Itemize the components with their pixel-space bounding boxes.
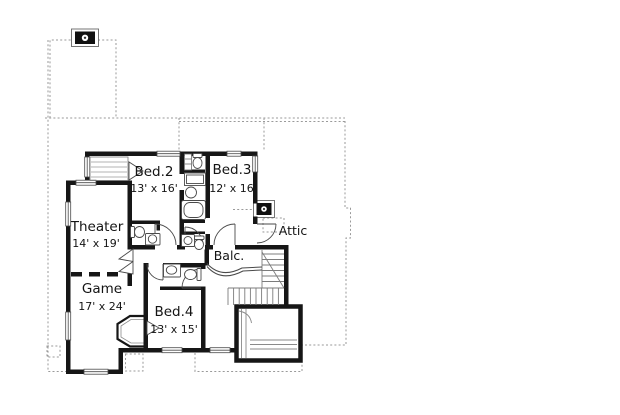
label-balcony: Balc. <box>214 248 245 263</box>
toilet-icon-bath-top <box>193 154 202 169</box>
label-attic: Attic <box>279 223 308 238</box>
double-door-theater <box>119 249 133 274</box>
label-bed4-dims: 13' x 15' <box>150 323 198 336</box>
wall-balcony-west <box>205 250 210 266</box>
sink-icon-bed4-bath <box>164 264 181 277</box>
sink-icon-bed2-bath <box>146 234 161 246</box>
wall-stair-east <box>284 245 289 308</box>
wall-bed4-west <box>144 263 149 353</box>
wall-bath-east-lower <box>206 234 211 250</box>
wall-bed3-east-stub <box>253 217 258 225</box>
wall-bed4-east-lower <box>201 288 206 353</box>
label-theater-dims: 14' x 19' <box>72 237 120 250</box>
toilet-icon-bed4-bath <box>185 269 202 281</box>
door-bed4-bath <box>147 264 163 280</box>
shower-icon <box>185 173 206 186</box>
window-game-bottom <box>84 369 108 374</box>
window-bed2-top <box>157 151 180 156</box>
label-game-dims: 17' x 24' <box>78 300 126 313</box>
door-bed3 <box>214 224 235 245</box>
label-bed2-dims: 13' x 16' <box>130 182 178 195</box>
floor-plan-drawing: Bed.2 13' x 16' Bed.3 12' x 16' Theater … <box>0 0 620 415</box>
floor-plan-canvas: Bed.2 13' x 16' Bed.3 12' x 16' Theater … <box>0 0 620 415</box>
wall-hall-north-1 <box>128 245 156 250</box>
window-game-west <box>66 312 71 340</box>
roof-outline-porch-box <box>126 354 144 371</box>
toilet-icon-bath-bottom <box>195 236 205 250</box>
roof-outline-left <box>48 40 66 372</box>
label-bed3-dims: 12' x 16' <box>209 182 257 195</box>
label-bed4-name: Bed.4 <box>154 304 193 320</box>
sink-icon-bath-mid <box>186 187 197 198</box>
toilet-icon-bed2-bath <box>131 227 145 238</box>
linen-closet <box>185 154 192 170</box>
label-game-name: Game <box>82 281 122 297</box>
roof-outline-topleft <box>50 40 116 118</box>
window-stairhall-bottom <box>210 348 230 353</box>
chimney-topleft-icon <box>72 29 99 47</box>
door-attic <box>257 224 276 243</box>
wall-hall-south-1 <box>144 263 149 268</box>
roof-outline-left-box <box>47 346 60 357</box>
wall-bed2-bath-h <box>130 221 160 225</box>
label-theater-name: Theater <box>70 219 124 235</box>
bathtub-icon <box>182 201 206 220</box>
closet-bed2-shelves <box>90 157 128 181</box>
label-bed3-name: Bed.3 <box>212 162 251 178</box>
stair-tower-room <box>237 307 301 361</box>
window-bed3-east <box>253 156 258 172</box>
sink-icon-bath-bottom <box>182 235 195 247</box>
wall-bath-div-2 <box>182 220 205 223</box>
label-bed2-name: Bed.2 <box>134 164 173 180</box>
roof-outline-dormer <box>179 118 264 152</box>
window-closet-west <box>85 157 90 177</box>
window-bed3-top <box>227 151 241 156</box>
window-bed4-bottom <box>162 348 182 353</box>
roof-outline-right <box>302 121 351 345</box>
window-theater-top <box>76 180 96 185</box>
wall-bed2-bath-v <box>157 221 161 231</box>
balcony-railing-curve <box>207 264 262 276</box>
stair-winder-diagonal <box>262 252 284 288</box>
